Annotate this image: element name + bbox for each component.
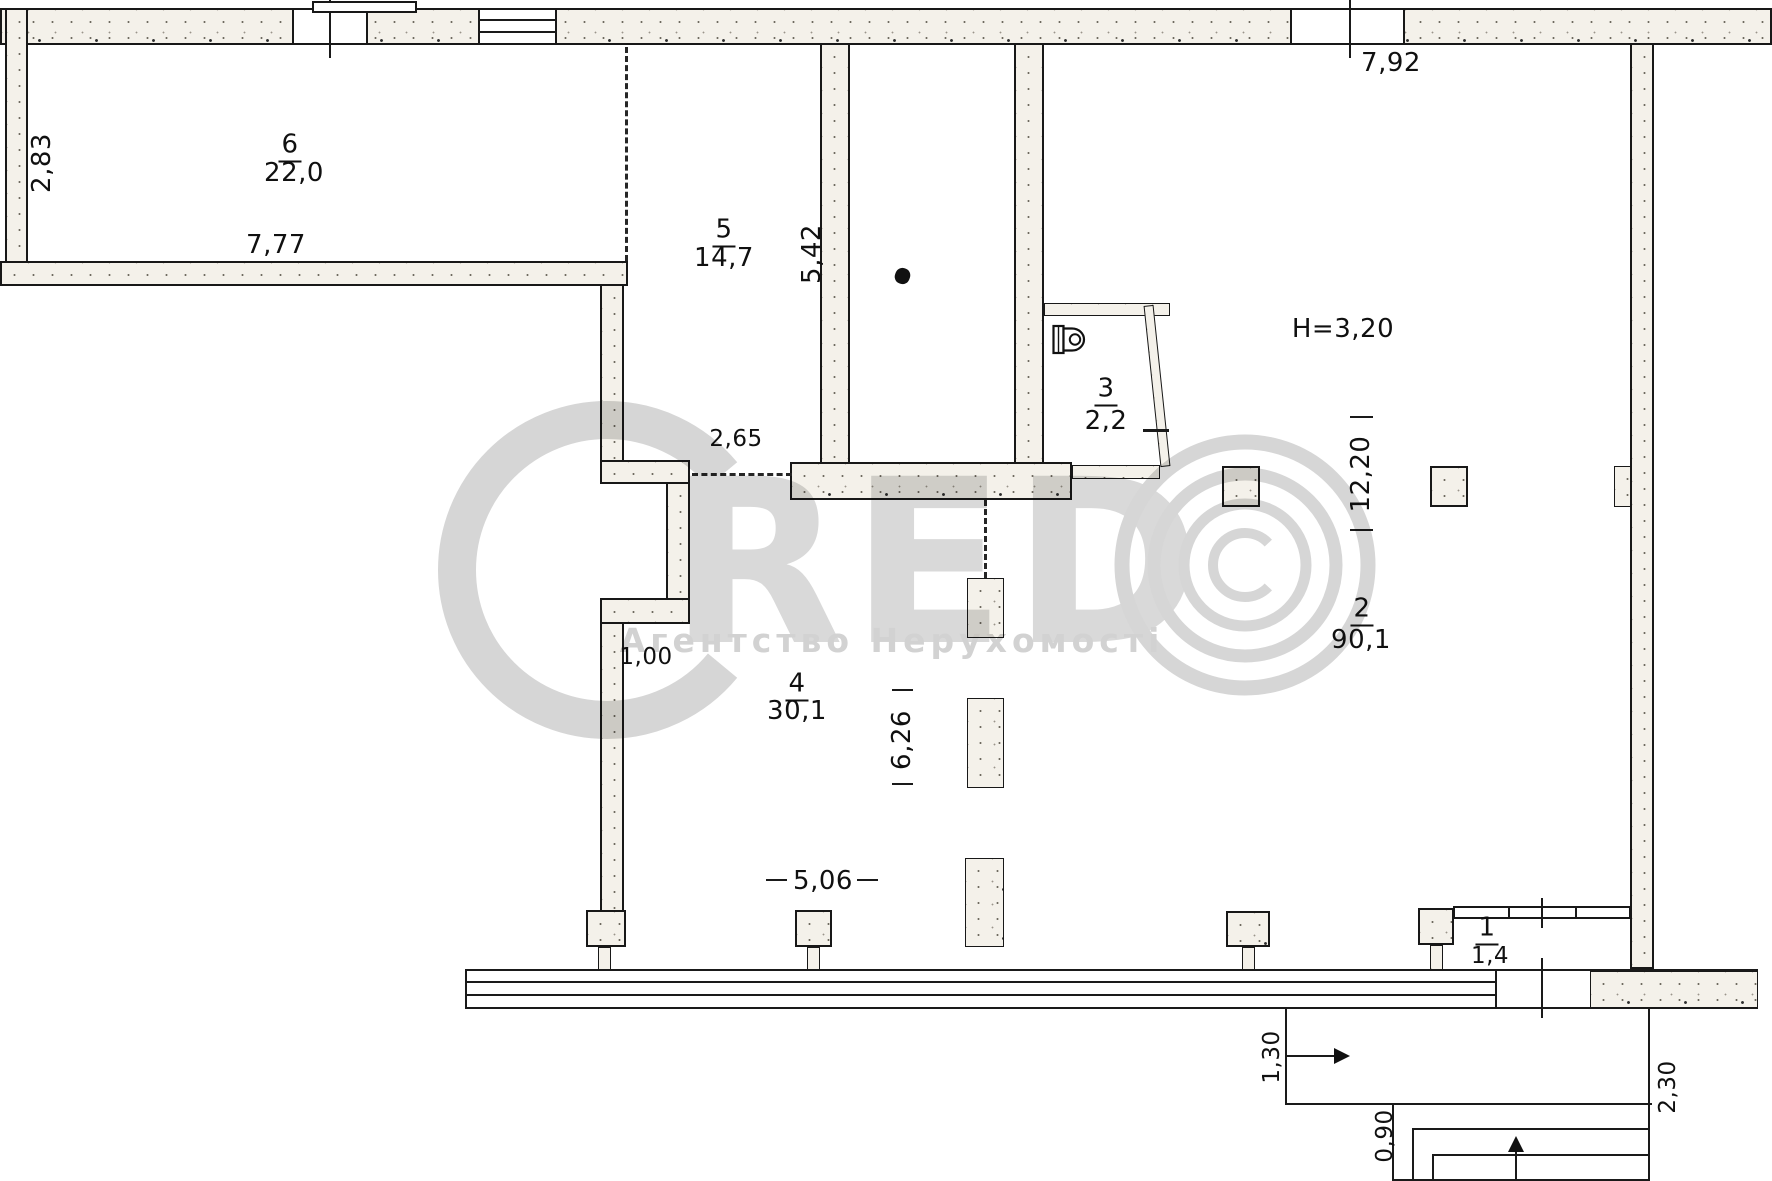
floor-plan-canvas: 6 22,0 2,83 7,77 5 14,7 5,42 2,65 3 2,2 …: [0, 0, 1772, 1181]
storefront-line-top: [465, 969, 1758, 971]
top-opening-right-axis-tick: [1349, 0, 1351, 58]
stairs-right-line: [1648, 1103, 1650, 1181]
dim-777: 7,77: [246, 230, 306, 260]
storefront-line-2: [465, 981, 1497, 983]
entrance-door-axis-tick: [1541, 958, 1543, 1018]
dim-626: 6,26: [887, 710, 917, 770]
room1-wall-divider-1: [1508, 906, 1510, 919]
top-opening-right: [1290, 10, 1405, 43]
wall-right: [1630, 43, 1654, 969]
storefront-jamb-1495: [1495, 971, 1497, 1008]
wall-room3-right-slanted: [1144, 305, 1171, 467]
dim-1220-tick-top: [1350, 416, 1373, 418]
dim-506: 5,06: [793, 866, 853, 896]
dim-542: 5,42: [797, 224, 827, 284]
room1-wall-axis-tick: [1541, 898, 1543, 928]
column-bottom-e: [1226, 911, 1270, 947]
dashed-column-axis: [984, 500, 987, 578]
room4-area: 30,1: [767, 696, 827, 726]
mullion-stub-f: [1430, 945, 1443, 971]
dim-1220-tick-bottom: [1350, 529, 1373, 531]
room2-area: 90,1: [1331, 625, 1391, 655]
room6-area: 22,0: [264, 158, 324, 188]
dim-792: 7,92: [1361, 48, 1421, 78]
niche-right-wall: [666, 482, 690, 602]
column-mid-1: [1222, 466, 1260, 507]
column-bottom-d: [795, 910, 832, 947]
top-window: [478, 10, 557, 43]
dim-090: 0,90: [1372, 1109, 1398, 1162]
column-bottom-left: [586, 910, 626, 947]
porch-arrow-stem: [1287, 1055, 1337, 1057]
dashed-room5-6-divider: [625, 47, 628, 261]
dim-1220: 12,20: [1346, 436, 1376, 513]
column-mid-2: [1430, 466, 1468, 507]
storefront-line-3: [465, 994, 1497, 996]
mullion-stub-d: [807, 947, 820, 971]
ceiling-height-note: H=3,20: [1292, 314, 1394, 344]
column-axis-3: [965, 858, 1004, 947]
dim-265: 2,65: [709, 426, 762, 452]
mullion-stub-left: [598, 947, 611, 971]
porch-right-line: [1648, 1008, 1650, 1105]
stairs-step1-h: [1412, 1128, 1650, 1130]
niche-top-band: [600, 460, 690, 484]
room1-wall-divider-2: [1575, 906, 1577, 919]
storefront-line-bottom: [465, 1007, 1758, 1009]
dim-506-dash-right: [857, 879, 878, 881]
wall-a: [600, 284, 624, 464]
porch-bottom-line: [1285, 1103, 1652, 1105]
storefront-cap-left: [465, 969, 467, 1009]
wall-top-band: [0, 8, 1772, 45]
pilaster-right: [1614, 466, 1631, 507]
wall-room6-bottom: [0, 261, 628, 286]
dim-506-dash-left: [766, 879, 787, 881]
niche-bottom-band: [600, 598, 690, 624]
canopy-rect: [312, 1, 417, 13]
dashed-opening-265: [692, 473, 792, 476]
stairs-step2-v: [1432, 1154, 1434, 1181]
column-axis-1: [967, 578, 1004, 638]
toilet-icon: [1052, 324, 1092, 356]
entrance-wall-chunk: [1590, 971, 1758, 1008]
ink-blot: [893, 266, 913, 286]
dim-626-tick-bottom: [892, 783, 913, 785]
wall-room3-shaft-bottom: [790, 462, 1072, 500]
room3-door-tick: [1143, 429, 1169, 432]
dim-283: 2,83: [27, 133, 57, 193]
mullion-stub-e: [1242, 947, 1255, 971]
watermark-agency-text: Агентство Нерухомості: [620, 621, 1165, 660]
porch-arrow-icon: [1334, 1048, 1350, 1064]
wall-room3-bottom-thin: [1072, 465, 1160, 479]
stairs-step1-v: [1412, 1128, 1414, 1181]
room1-area: 1,4: [1471, 943, 1509, 969]
column-axis-2: [967, 698, 1004, 788]
dim-626-tick-top: [892, 689, 913, 691]
room2-number: 2: [1350, 594, 1373, 627]
wall-shaft-right: [1014, 43, 1044, 464]
top-window-mullion-2: [478, 31, 557, 33]
top-window-mullion-1: [478, 19, 557, 21]
column-bottom-f: [1418, 908, 1454, 945]
dim-100: 1,00: [619, 644, 672, 670]
room3-area: 2,2: [1085, 406, 1128, 436]
room1-number: 1: [1475, 913, 1498, 946]
wall-left: [5, 8, 28, 286]
dim-230: 2,30: [1655, 1060, 1681, 1113]
room5-area: 14,7: [694, 243, 754, 273]
stairs-step2-h: [1432, 1154, 1650, 1156]
stairs-arrow-icon: [1508, 1136, 1524, 1152]
room3-number: 3: [1094, 374, 1117, 407]
dim-130: 1,30: [1259, 1030, 1285, 1083]
